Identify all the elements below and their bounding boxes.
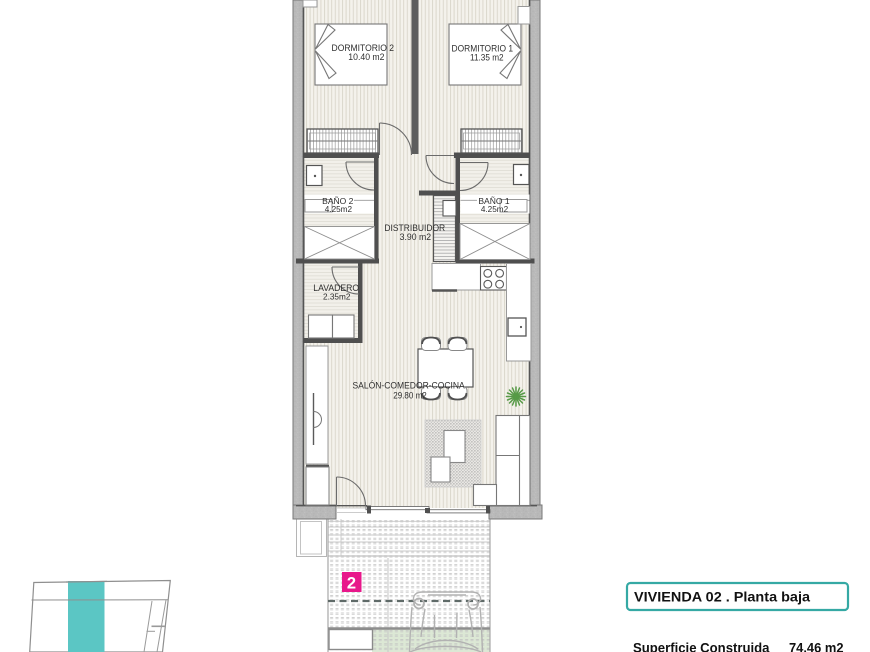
svg-text:3.90 m2: 3.90 m2: [400, 232, 432, 242]
svg-text:4.25m2: 4.25m2: [325, 205, 353, 214]
svg-text:Superficie Construida: Superficie Construida: [633, 640, 770, 652]
svg-text:10.40 m2: 10.40 m2: [348, 52, 384, 62]
svg-text:2.35m2: 2.35m2: [323, 291, 351, 301]
svg-text:VIVIENDA 02 . Planta baja: VIVIENDA 02 . Planta baja: [634, 589, 811, 604]
svg-text:74.46 m2: 74.46 m2: [789, 640, 844, 652]
svg-text:11.35 m2: 11.35 m2: [470, 52, 504, 62]
svg-text:29.80 m2: 29.80 m2: [393, 391, 427, 401]
svg-text:4.25m2: 4.25m2: [481, 205, 509, 214]
svg-text:2: 2: [347, 575, 356, 593]
